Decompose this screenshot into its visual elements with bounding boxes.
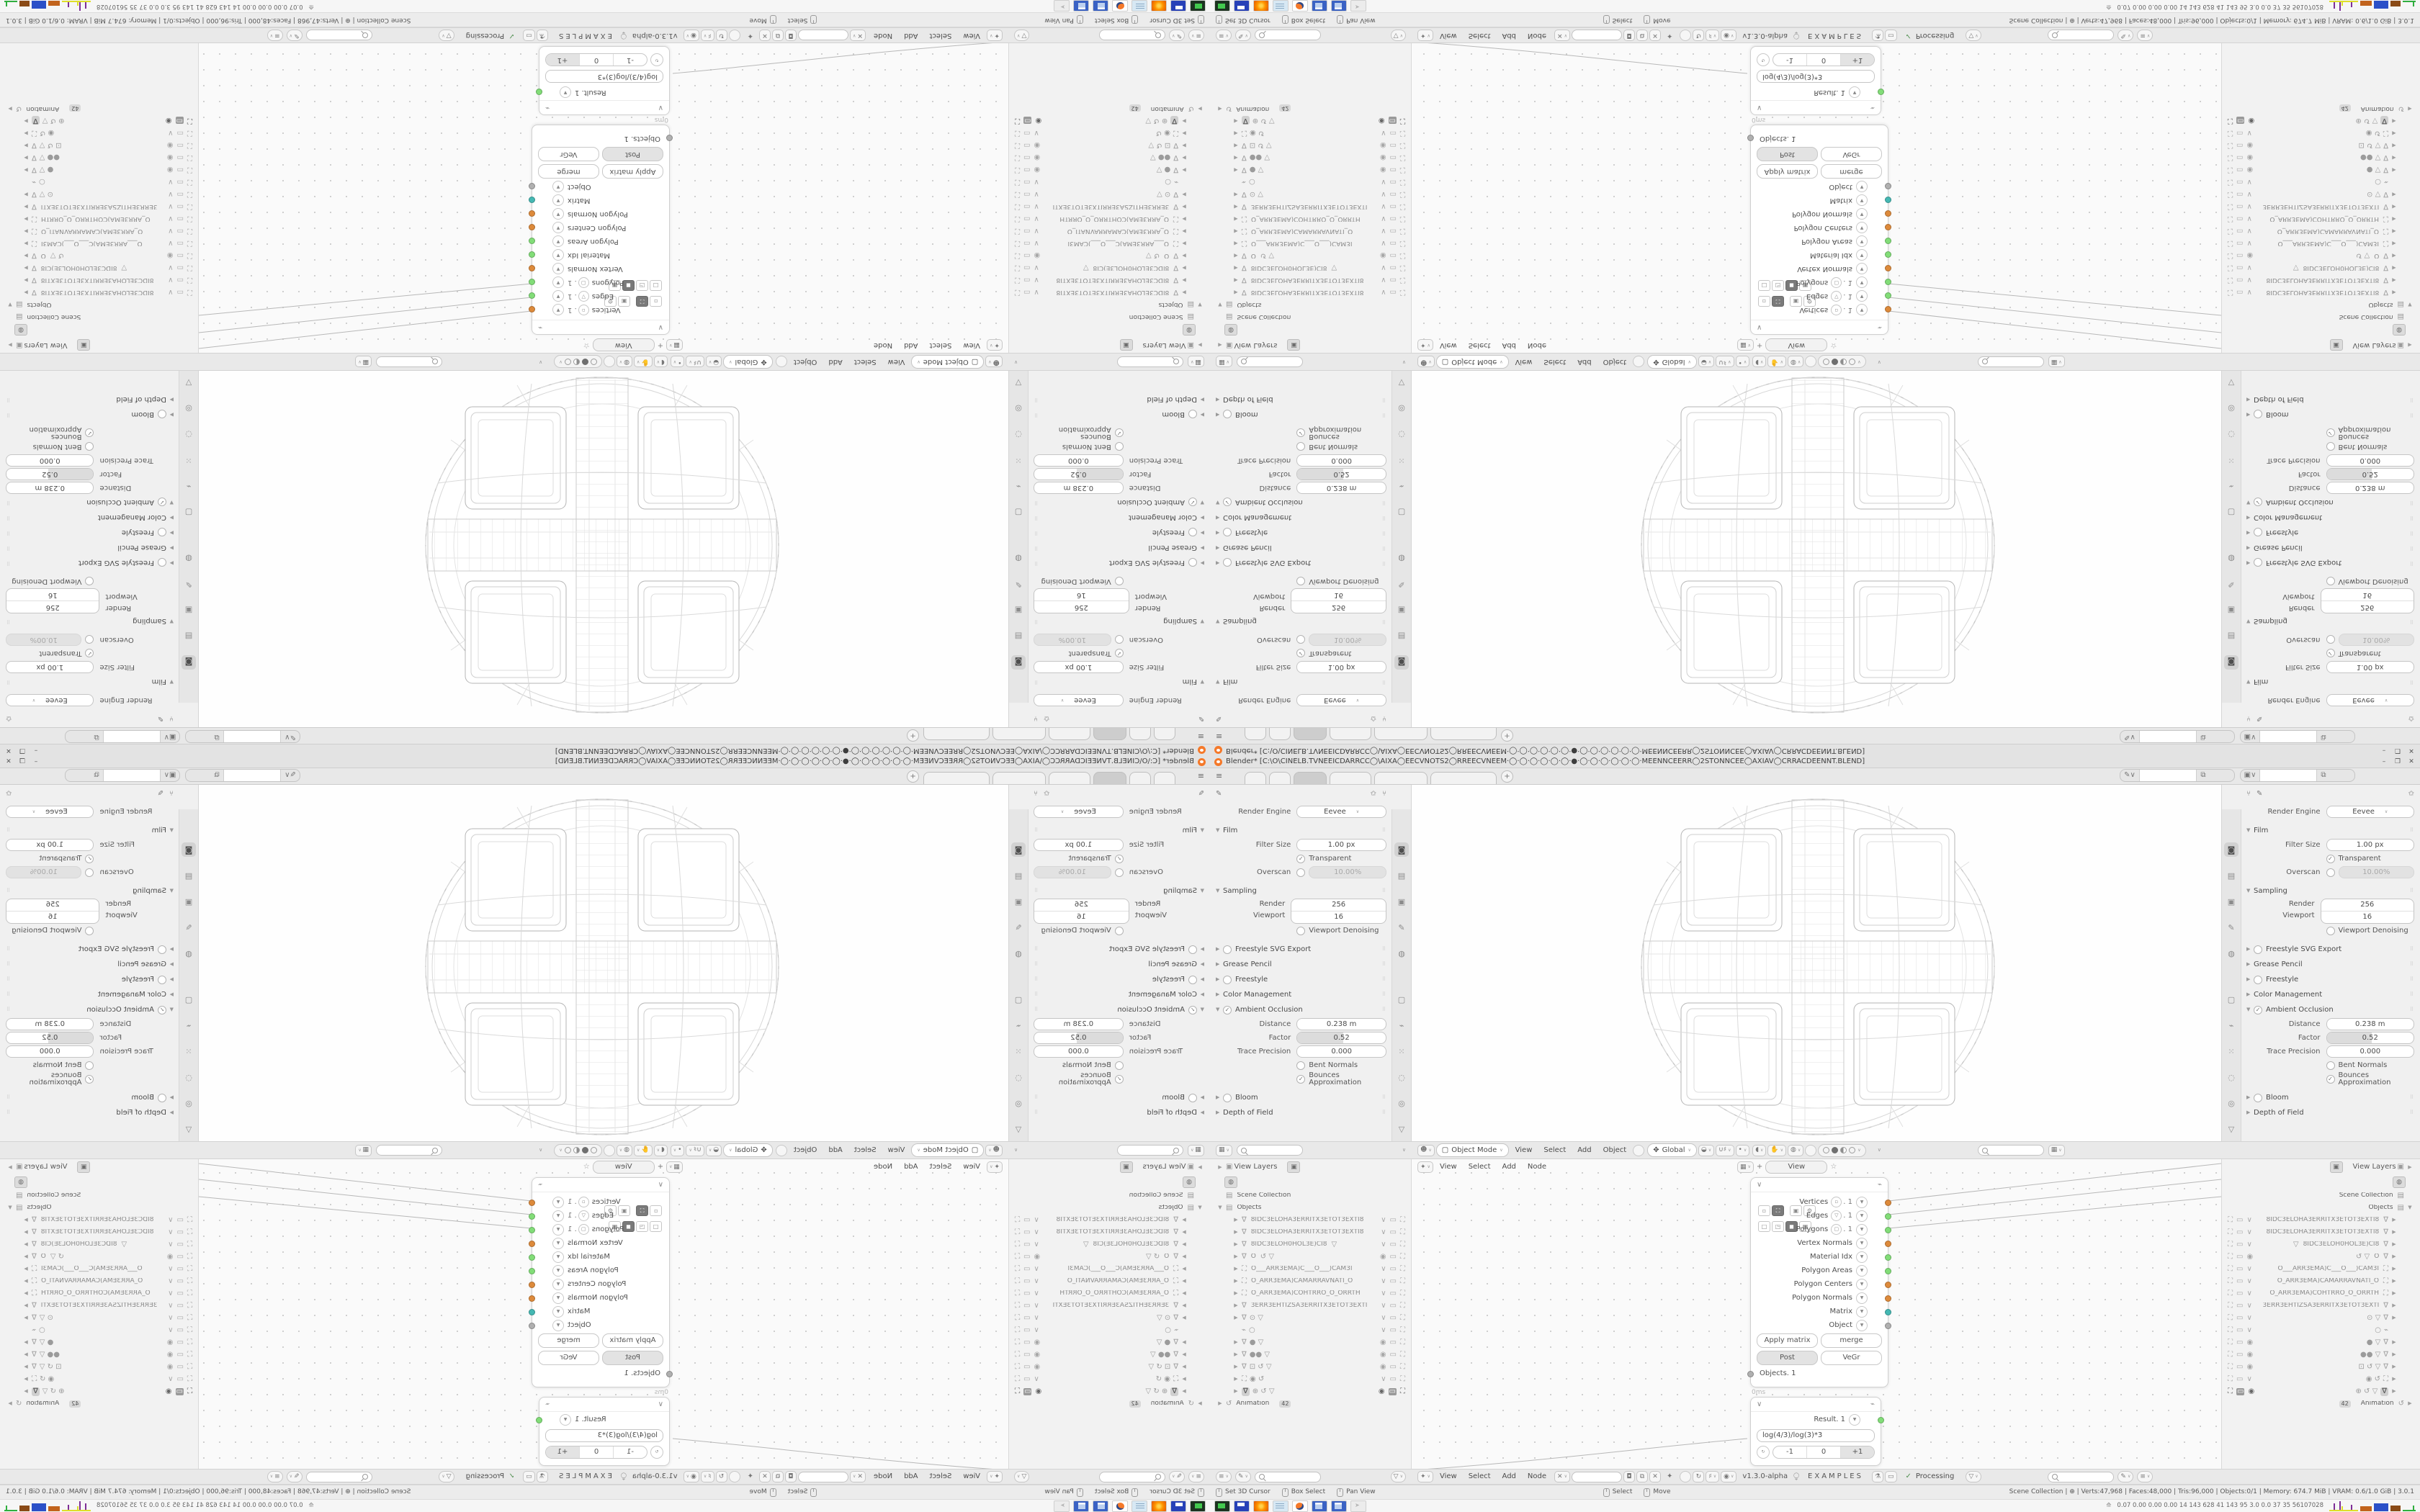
samples-render-input[interactable]: 256 <box>1034 899 1129 911</box>
node-output-polygon-areas[interactable]: Polygon Areas▼ <box>1751 1264 1888 1277</box>
node-result[interactable]: ∨⌁ Result. 1▼ log(4/3)/log(3)*3 ↻ -1 0 +… <box>1750 46 1881 115</box>
sphere-icon[interactable]: ◉∨ <box>684 30 699 41</box>
filter-size-input[interactable]: 1.00 px <box>1034 661 1124 673</box>
menu-select[interactable]: Select <box>1543 359 1566 366</box>
taskbar-blender-icon[interactable] <box>1292 1500 1308 1512</box>
workspace-tab[interactable] <box>1154 728 1175 740</box>
outliner-search-input[interactable] <box>306 30 372 41</box>
properties-search-input[interactable] <box>1237 356 1303 367</box>
section-depth-of-field[interactable]: ▶Depth of Field⠿ <box>1034 392 1204 407</box>
outliner-item[interactable]: ▶∇●● ▽◉▭⛶ <box>0 1349 198 1361</box>
workspace-tab[interactable] <box>1245 772 1266 784</box>
section-freestyle-svg[interactable]: ▶Freestyle SVG Export⠿ <box>1216 942 1386 957</box>
collapse-icon[interactable]: ▶ <box>2406 1165 2414 1170</box>
outliner-item[interactable]: ▶∇8IDC3ELOHA3ERRITX3ETOT3EXTI8∨▭⛶ <box>0 286 198 298</box>
id-selector-brush[interactable]: ✎∨ ⧉ <box>2120 769 2235 782</box>
add-workspace-button[interactable]: + <box>907 770 919 783</box>
transform-orientation-select[interactable]: ✥ Global∨ <box>1647 1143 1697 1157</box>
zero-button[interactable]: 0 <box>1806 54 1840 66</box>
menu-view[interactable]: View <box>888 1147 905 1154</box>
snap-grid-icon[interactable]: ♯∨ <box>1706 1471 1719 1482</box>
brush-icon[interactable]: ✎∨ <box>1235 30 1251 41</box>
outliner-item[interactable]: ▶∇⊡ ↺ ▽◉▭⛶ <box>1210 1361 1411 1373</box>
scene-collection-label[interactable]: Scene Collection <box>27 1192 81 1199</box>
bounces-checkbox[interactable]: ✓ <box>85 429 94 438</box>
section-film[interactable]: ▼Film⠿ <box>6 823 174 838</box>
copy-icon[interactable]: ⧉ <box>90 770 103 781</box>
socket-result[interactable] <box>536 1417 542 1423</box>
scene-collection-label[interactable]: Scene Collection <box>1129 1192 1183 1199</box>
properties-editor-icon[interactable]: ✎ <box>158 791 163 798</box>
menu-select[interactable]: Select <box>1469 1473 1491 1480</box>
minimize-button[interactable]: – <box>2380 759 2388 765</box>
section-freestyle-svg[interactable]: ▶Freestyle SVG Export⠿ <box>1034 555 1204 570</box>
menu-add[interactable]: Add <box>828 1147 842 1154</box>
scene-collection-label[interactable]: Scene Collection <box>2339 313 2393 320</box>
outliner-item[interactable]: ▶⛶◉ ↺∨▭⛶ <box>1009 127 1210 139</box>
denoise-checkbox[interactable] <box>2326 577 2335 586</box>
view-layer-button[interactable]: ▣ <box>2330 339 2343 351</box>
overscan-input[interactable]: 10.00% <box>2339 866 2414 878</box>
menu-object[interactable]: Object <box>794 1147 817 1154</box>
add-view-button[interactable]: + <box>1757 1164 1762 1171</box>
filter-icon[interactable]: ▽∨ <box>1391 30 1406 41</box>
pin-icon[interactable]: ✦ <box>1667 1473 1672 1480</box>
globe-icon[interactable]: ◍ <box>1183 324 1196 336</box>
outliner-animation-row[interactable]: ▶↺ Animation 42 <box>1210 1398 1411 1410</box>
expression-input[interactable]: log(4/3)/log(3)*3 <box>1757 1429 1875 1442</box>
node-editor-icon[interactable]: ✦∨ <box>987 30 1003 41</box>
overlays-icon[interactable]: ◍∨ <box>1788 1145 1803 1156</box>
bent-normals-checkbox[interactable] <box>2326 1061 2335 1070</box>
transform-orientation-select[interactable]: ✥ Global∨ <box>723 1143 773 1157</box>
filter-icon[interactable]: ▽∨ <box>1014 1471 1029 1482</box>
outliner-item[interactable]: ▶⛶O_ARR3EMA)COHTRRO_O_ORRTH∨▭⛶ <box>2222 1287 2420 1300</box>
section-color-management[interactable]: ▶Color Management⠿ <box>1216 510 1386 525</box>
menu-select[interactable]: Select <box>929 1164 951 1171</box>
shading-wireframe-icon[interactable] <box>591 359 597 365</box>
sphere-icon[interactable]: ◉∨ <box>1721 30 1736 41</box>
shield-icon[interactable]: ◘ <box>1623 30 1635 41</box>
menu-select[interactable]: Select <box>1543 1147 1566 1154</box>
taskbar-calculator-icon[interactable] <box>1312 1 1327 12</box>
view-layer-button[interactable]: ▣ <box>1120 1161 1133 1173</box>
workspace-tab[interactable] <box>1245 728 1266 740</box>
samples-viewport-input[interactable]: 16 <box>2321 589 2414 601</box>
bounces-checkbox[interactable]: ✓ <box>1115 1075 1124 1084</box>
tab-world[interactable]: ◍ <box>1394 946 1409 960</box>
snap-toggle-icon[interactable]: ◒∨ <box>1698 356 1714 368</box>
outliner-item[interactable]: ▶∇8IDC3ELOHA3ERRITX3ETOT3EXTI8∨▭⛶ <box>0 1226 198 1238</box>
socket-polygon-areas[interactable] <box>529 1268 535 1274</box>
globe-icon[interactable]: ◍ <box>2393 1176 2406 1188</box>
globe-icon[interactable]: ◍ <box>14 324 27 336</box>
tab-object[interactable]: ▢ <box>2224 505 2238 520</box>
node-mesh-data[interactable]: ∨⌁ ▫⛶ ▣⚙ □◳ ◼▦ Vertices▫. 1▼ Edges▽. 1▼ … <box>1750 125 1888 335</box>
node-output-edges[interactable]: Edges▽. 1▼ <box>532 1209 669 1223</box>
objects-collection-label[interactable]: Objects <box>2369 301 2393 307</box>
taskbar-terminal-icon[interactable] <box>1190 1500 1206 1512</box>
menu-object[interactable]: Object <box>1603 359 1627 366</box>
outliner-item[interactable]: ▶⛶◉ ↺∨▭⛶ <box>2222 127 2420 139</box>
socket-objects-input[interactable] <box>1747 1371 1754 1377</box>
properties-editor-icon[interactable]: ✎ <box>1198 791 1204 798</box>
freestyle-svg-checkbox[interactable] <box>1223 945 1232 954</box>
section-freestyle-svg[interactable]: ▶Freestyle SVG Export⠿ <box>6 942 174 957</box>
socket-polygon-centers[interactable] <box>529 1282 535 1288</box>
freestyle-checkbox[interactable] <box>1188 976 1197 984</box>
viewport-extra-button[interactable] <box>776 356 787 368</box>
apply-matrix-button[interactable]: Apply matrix <box>1757 1333 1818 1348</box>
tab-object[interactable]: ▢ <box>181 992 196 1007</box>
proportional-edit-icon[interactable]: •∨ <box>1736 1145 1750 1156</box>
viewport-extra-button[interactable] <box>776 1145 787 1156</box>
view-layer-button[interactable]: ▣ <box>77 1161 90 1173</box>
filter-size-input[interactable]: 1.00 px <box>1296 661 1386 673</box>
ao-distance-input[interactable]: 0.238 m <box>6 1018 94 1030</box>
bounces-checkbox[interactable]: ✓ <box>1296 1075 1305 1084</box>
samples-viewport-input[interactable]: 16 <box>1291 589 1386 601</box>
freestyle-svg-checkbox[interactable] <box>1188 945 1197 954</box>
overscan-input[interactable]: 10.00% <box>6 634 81 646</box>
dot-button[interactable] <box>1680 1471 1691 1482</box>
menu-node[interactable]: Node <box>1528 1164 1546 1171</box>
section-depth-of-field[interactable]: ▶Depth of Field⠿ <box>1034 1105 1204 1120</box>
outliner-item[interactable]: ⌁○∨▭⛶ <box>2222 1324 2420 1336</box>
outliner-search-input[interactable] <box>1255 1472 1321 1482</box>
outliner-item[interactable]: ⌁○∨▭⛶ <box>1009 1324 1210 1336</box>
minus-one-button[interactable]: -1 <box>614 54 647 66</box>
outliner-item[interactable]: ▶⛶O___ARR3EMA)C___O___)CAM3I∨▭⛶ <box>1210 237 1411 249</box>
copy-icon[interactable]: ⧉ <box>1636 1471 1648 1482</box>
bounces-checkbox[interactable]: ✓ <box>1296 429 1305 438</box>
tab-physics[interactable]: ◌ <box>181 1070 196 1084</box>
zero-button[interactable]: 0 <box>580 1446 614 1458</box>
dna-icon[interactable]: ✕∨ <box>1554 30 1570 41</box>
section-freestyle-svg[interactable]: ▶Freestyle SVG Export⠿ <box>6 555 174 570</box>
brush-icon[interactable]: ✎∨ <box>1169 1471 1185 1482</box>
tab-view-layer[interactable]: ▣ <box>181 894 196 909</box>
ao-trace-input[interactable]: 0.000 <box>2326 1045 2414 1058</box>
id-input[interactable] <box>103 731 161 742</box>
workspace-tab[interactable] <box>1330 728 1371 740</box>
outliner-item[interactable]: ▶⛶O_ARR3EMA)COHTRRO_O_ORRTH∨▭⛶ <box>1009 212 1210 225</box>
bloom-checkbox[interactable] <box>2254 410 2262 419</box>
tab-constraints[interactable]: ◎ <box>181 402 196 416</box>
menu-select[interactable]: Select <box>854 1147 877 1154</box>
objects-collection-label[interactable]: Objects <box>27 1205 51 1211</box>
node-output-vertex-normals[interactable]: Vertex Normals▼ <box>1751 262 1888 276</box>
workspace-tab[interactable] <box>1269 728 1291 740</box>
outliner-item[interactable]: ▶∇⊡ ↺ ▽◉▭⛶ <box>1009 1361 1210 1373</box>
snap-grid-icon[interactable]: ♯∨ <box>1706 30 1719 41</box>
taskbar-firefox-icon[interactable] <box>1151 1 1167 12</box>
shading-material-icon[interactable] <box>573 359 580 365</box>
outliner-item[interactable]: ▶∇O↺ ▽◉▭⛶ <box>0 249 198 261</box>
node-output-result[interactable]: Result. 1▼ <box>539 1412 669 1427</box>
outliner-item-selected[interactable]: ▶∇⊕ ↺ ▽◉▭⛶ <box>1009 1385 1210 1398</box>
brush-icon[interactable]: ✎∨ <box>287 1471 302 1482</box>
outliner-item[interactable]: ▶∇⊙ ▽∨▭⛶ <box>2222 188 2420 200</box>
render-engine-select[interactable]: Eevee∨ <box>2326 806 2414 818</box>
objects-collection-label[interactable]: Objects <box>1159 301 1183 307</box>
bloom-checkbox[interactable] <box>1223 410 1232 419</box>
tab-modifiers[interactable]: ⌁ <box>181 1018 196 1032</box>
add-view-button[interactable]: + <box>658 341 663 348</box>
outliner-item[interactable]: ▶⛶◉ ↺∨▭⛶ <box>0 127 198 139</box>
outliner-search-input[interactable] <box>2048 1472 2114 1482</box>
tab-render[interactable]: ◙ <box>181 842 196 857</box>
outliner-item[interactable]: ▶⛶O_ARR3EMA)COHTRRO_O_ORRTH∨▭⛶ <box>0 1287 198 1300</box>
workspace-tab[interactable] <box>923 772 990 784</box>
render-engine-select[interactable]: Eevee∨ <box>1034 694 1124 706</box>
render-engine-select[interactable]: Eevee∨ <box>2326 694 2414 706</box>
shading-material-icon[interactable] <box>1840 1147 1847 1153</box>
monitor-icon[interactable]: ▭ <box>1885 1471 1897 1482</box>
section-color-management[interactable]: ▶Color Management⠿ <box>6 987 174 1002</box>
overscan-input[interactable]: 10.00% <box>1034 866 1111 878</box>
menu-node[interactable]: Node <box>874 1164 892 1171</box>
editor-type-button[interactable]: ▦∨ <box>1188 356 1204 368</box>
window-titlebar[interactable]: Blender* [C:\O\CINELB.TVNEEICDARRCC◯\AIX… <box>0 744 1210 756</box>
shading-rendered-icon[interactable] <box>1849 1147 1855 1153</box>
shield-icon[interactable]: ◘ <box>1623 1471 1635 1482</box>
outliner-item[interactable]: ▶∇⊡ ↺ ▽◉▭⛶ <box>1009 139 1210 151</box>
tab-render[interactable]: ◙ <box>2224 655 2238 670</box>
menu-select[interactable]: Select <box>929 341 951 348</box>
node-output-vertices[interactable]: Vertices▫. 1▼ <box>1751 303 1888 317</box>
outliner-item[interactable]: ▶∇●● ▽◉▭⛶ <box>2222 1349 2420 1361</box>
collapse-icon[interactable]: ▶ <box>1216 343 1224 348</box>
socket-objects-input[interactable] <box>1747 135 1754 141</box>
samples-viewport-input[interactable]: 16 <box>1034 911 1129 923</box>
ao-factor-slider[interactable]: 0.52 <box>1296 1032 1386 1044</box>
menu-add[interactable]: Add <box>1502 32 1516 39</box>
node-output-polygon-centers[interactable]: Polygon Centers▼ <box>1751 221 1888 235</box>
workspace-tab[interactable] <box>1374 728 1428 740</box>
samples-render-input[interactable]: 256 <box>1034 601 1129 613</box>
node-result[interactable]: ∨⌁ Result. 1▼ log(4/3)/log(3)*3 ↻ -1 0 +… <box>1750 1397 1881 1466</box>
tab-view-layer[interactable]: ▣ <box>1011 894 1026 909</box>
vegr-button[interactable]: VeGr <box>538 147 599 161</box>
editor-type-button[interactable]: ▦∨ <box>2048 1145 2065 1156</box>
globe-icon[interactable]: ◍ <box>1224 1176 1237 1188</box>
tab-output[interactable]: ▤ <box>1011 868 1026 883</box>
outliner-item[interactable]: ⌁○∨▭⛶ <box>2222 176 2420 188</box>
add-view-button[interactable]: + <box>1757 341 1762 348</box>
menu-add[interactable]: Add <box>904 341 918 348</box>
outliner-item[interactable]: ▶∇3ERR3EHTIZSA3ERRITX3ETOT3EXTI∨▭⛶ <box>1210 1300 1411 1312</box>
shading-rendered-icon[interactable] <box>565 359 571 365</box>
section-grease-pencil[interactable]: ▶Grease Pencil⠿ <box>1034 540 1204 555</box>
tab-particles[interactable]: ⁙ <box>2224 454 2238 468</box>
magnet-icon[interactable]: ∪♯∨ <box>686 356 704 368</box>
maximize-button[interactable]: ❐ <box>18 747 27 754</box>
snap-grid-icon[interactable]: ♯∨ <box>701 1471 714 1482</box>
menu-add[interactable]: Add <box>904 32 918 39</box>
section-film[interactable]: ▼Film⠿ <box>1216 674 1386 689</box>
properties-search-input[interactable] <box>1978 356 2044 367</box>
tab-scene[interactable]: ✎ <box>1011 577 1026 592</box>
outliner-search-input[interactable] <box>1099 30 1165 41</box>
node-mesh-data[interactable]: ∨⌁ ▫⛶ ▣⚙ □◳ ◼▦ Vertices▫. 1▼ Edges▽. 1▼ … <box>1750 1177 1888 1387</box>
menu-view[interactable]: View <box>1515 1147 1533 1154</box>
overscan-input[interactable]: 10.00% <box>1034 634 1111 646</box>
tab-world[interactable]: ◍ <box>181 552 196 566</box>
scene-collection-label[interactable]: Scene Collection <box>1237 313 1291 320</box>
tab-scene[interactable]: ✎ <box>1394 920 1409 935</box>
shading-solid-icon[interactable] <box>582 1147 588 1153</box>
minimize-button[interactable]: – <box>32 747 40 754</box>
node-output-vertices[interactable]: Vertices▫. 1▼ <box>1751 1195 1888 1209</box>
refresh-icon[interactable]: ↻ <box>1757 53 1770 66</box>
socket-vertex-normals[interactable] <box>529 266 535 272</box>
object-mode-select[interactable]: ▢ Object Mode∨ <box>1436 355 1509 369</box>
section-ambient-occlusion[interactable]: ▼✓Ambient Occlusion⠿ <box>1216 1002 1386 1017</box>
viewport-3d[interactable] <box>1412 785 2221 1141</box>
outliner-item[interactable]: ▶∇8IDC3ELOHA3ERRITX3ETOT3EXTI8∨▭⛶ <box>2222 1226 2420 1238</box>
dna-icon[interactable]: ✕∨ <box>850 1471 866 1482</box>
properties-search-input[interactable] <box>1237 1145 1303 1156</box>
section-ambient-occlusion[interactable]: ▼✓Ambient Occlusion⠿ <box>6 495 174 510</box>
ao-distance-input[interactable]: 0.238 m <box>6 482 94 494</box>
outliner-item[interactable]: ▶∇8IDC3ELOHA3ERRITX3ETOT3EXTI8∨▭⛶ <box>1210 274 1411 286</box>
section-ambient-occlusion[interactable]: ▼✓Ambient Occlusion⠿ <box>1216 495 1386 510</box>
ao-distance-input[interactable]: 0.238 m <box>2326 1018 2414 1030</box>
ao-factor-slider[interactable]: 0.52 <box>2326 468 2414 480</box>
id-selector-image[interactable]: ▣∨ ⧉ <box>2240 730 2355 743</box>
section-color-management[interactable]: ▶Color Management⠿ <box>1216 987 1386 1002</box>
menu-view[interactable]: View <box>1440 1473 1457 1480</box>
taskbar-notes-icon[interactable] <box>1131 1500 1147 1512</box>
menu-add[interactable]: Add <box>904 1473 918 1480</box>
socket-material-idx[interactable] <box>1885 1254 1891 1261</box>
outliner-search-input[interactable] <box>2048 30 2114 41</box>
close-button[interactable]: ✕ <box>4 759 13 765</box>
proportional-edit-icon[interactable]: •∨ <box>671 1145 685 1156</box>
expression-input[interactable]: log(4/3)/log(3)*3 <box>545 1429 663 1442</box>
node-editor-icon[interactable]: ✦∨ <box>987 1471 1003 1482</box>
tab-output[interactable]: ▤ <box>2224 868 2238 883</box>
tab-object[interactable]: ▢ <box>1011 505 1026 520</box>
brush-icon[interactable]: ✎∨ <box>287 30 302 41</box>
outliner-item[interactable]: ⌁○∨▭⛶ <box>1210 1324 1411 1336</box>
samples-render-input[interactable]: 256 <box>2321 899 2414 911</box>
ao-checkbox[interactable]: ✓ <box>2254 1006 2262 1014</box>
collapse-icon[interactable]: ▶ <box>1196 1165 1204 1170</box>
section-ambient-occlusion[interactable]: ▼✓Ambient Occlusion⠿ <box>2246 495 2414 510</box>
outliner-item[interactable]: ▶∇8IDC3ELOH0HOL3E)CI8▽∨▭⛶ <box>2222 261 2420 274</box>
node-search-input[interactable] <box>1572 1472 1622 1482</box>
taskbar-calculator-icon[interactable] <box>1093 1 1108 12</box>
outliner-item[interactable]: ▶∇8IDC3ELOH0HOL3E)CI8▽∨▭⛶ <box>0 261 198 274</box>
tab-output[interactable]: ▤ <box>181 868 196 883</box>
tab-output[interactable]: ▤ <box>181 629 196 644</box>
star-icon[interactable]: ☆ <box>1830 1164 1837 1171</box>
tab-modifiers[interactable]: ⌁ <box>1394 1018 1409 1032</box>
tab-view-layer[interactable]: ▣ <box>181 603 196 618</box>
outliner-item[interactable]: ▶∇8IDC3ELOH0HOL3E)CI8▽∨▭⛶ <box>1009 261 1210 274</box>
outliner-item[interactable]: ▶∇⊡ ↺ ▽◉▭⛶ <box>2222 139 2420 151</box>
section-depth-of-field[interactable]: ▶Depth of Field⠿ <box>6 1105 174 1120</box>
snap-toggle-icon[interactable]: ◒∨ <box>706 356 722 368</box>
tab-physics[interactable]: ◌ <box>2224 428 2238 442</box>
outliner-item-selected[interactable]: ▶∇⊕ ↺ ▽◉▭⛶ <box>2222 114 2420 127</box>
tab-data[interactable]: ▽ <box>2224 376 2238 390</box>
filter-size-input[interactable]: 1.00 px <box>6 661 94 673</box>
globe-icon[interactable]: ◍ <box>1224 324 1237 336</box>
editor-type-button[interactable]: ▦∨ <box>2048 356 2065 368</box>
socket-polygon-normals[interactable] <box>1885 1295 1891 1302</box>
outliner-animation-row[interactable]: ▶↺ Animation 42 <box>0 1398 198 1410</box>
tab-scene[interactable]: ✎ <box>1011 920 1026 935</box>
grid-icon[interactable]: ▦∨ <box>1737 339 1754 351</box>
node-output-vertices[interactable]: Vertices▫. 1▼ <box>532 1195 669 1209</box>
section-grease-pencil[interactable]: ▶Grease Pencil⠿ <box>2246 957 2414 972</box>
workspace-tab[interactable] <box>1330 772 1371 784</box>
node-editor[interactable]: ✦∨ View Select Add Node ▦∨ + View ☆ ∨⌁ ▫… <box>1412 43 2221 353</box>
outliner-item-selected[interactable]: ▶∇⊕ ↺ ▽◉▭⛶ <box>1210 114 1411 127</box>
socket-vertex-normals[interactable] <box>1885 1241 1891 1247</box>
socket-matrix[interactable] <box>529 1309 535 1315</box>
tab-world[interactable]: ◍ <box>1394 552 1409 566</box>
section-freestyle-svg[interactable]: ▶Freestyle SVG Export⠿ <box>2246 555 2414 570</box>
menu-object[interactable]: Object <box>1603 1147 1627 1154</box>
pin-icon[interactable]: ✦ <box>748 32 753 39</box>
globe-icon[interactable]: ◍ <box>2393 324 2406 336</box>
refresh-icon[interactable]: ↻ <box>1757 1446 1770 1459</box>
outliner-search-input[interactable] <box>1099 1472 1165 1482</box>
outliner-search-input[interactable] <box>1255 30 1321 41</box>
freestyle-svg-checkbox[interactable] <box>2254 945 2262 954</box>
id-selector-image[interactable]: ▣∨ ⧉ <box>65 769 180 782</box>
taskbar-blender-icon[interactable] <box>1292 1 1308 12</box>
maximize-button[interactable]: ❐ <box>18 759 27 765</box>
section-depth-of-field[interactable]: ▶Depth of Field⠿ <box>1216 1105 1386 1120</box>
workspace-tab[interactable] <box>923 728 990 740</box>
outliner-item[interactable]: ▶∇⊙ ▽∨▭⛶ <box>1210 1312 1411 1324</box>
filter-icon[interactable]: ▽∨ <box>439 1471 454 1482</box>
node-output-polygons[interactable]: Polygons▢. 1▼ <box>532 276 669 289</box>
properties-editor-icon[interactable]: ✎ <box>1216 714 1222 721</box>
outliner-item[interactable]: ▶⛶O___ARR3EMA)C___O___)CAM3I∨▭⛶ <box>1009 237 1210 249</box>
mode-icon-button[interactable]: ☻∨ <box>1417 1145 1435 1156</box>
ao-trace-input[interactable]: 0.000 <box>1296 454 1386 467</box>
outliner-item[interactable]: ▶∇● ▽◉▭⛶ <box>0 1336 198 1349</box>
ao-checkbox[interactable]: ✓ <box>1223 1006 1232 1014</box>
apply-matrix-button[interactable]: Apply matrix <box>1757 164 1818 179</box>
xray-button[interactable] <box>1805 356 1816 368</box>
add-workspace-button[interactable]: + <box>1501 770 1513 783</box>
tool-icon[interactable]: ⑂ <box>1034 714 1038 721</box>
maximize-button[interactable]: ❐ <box>2393 759 2402 765</box>
orbit-icon[interactable]: ↻ <box>1693 1471 1704 1482</box>
section-sampling[interactable]: ▼Sampling⠿ <box>6 883 174 899</box>
tab-constraints[interactable]: ◎ <box>1394 402 1409 416</box>
samples-render-input[interactable]: 256 <box>2321 601 2414 613</box>
monitor-icon[interactable]: ▭ <box>523 30 535 41</box>
taskbar-terminal-icon[interactable] <box>1190 1 1206 12</box>
overscan-checkbox[interactable] <box>2326 636 2335 644</box>
tab-render[interactable]: ◙ <box>1394 655 1409 670</box>
node-output-matrix[interactable]: Matrix▼ <box>1751 194 1888 207</box>
taskbar-calculator2-icon[interactable] <box>1331 1 1347 12</box>
ao-trace-input[interactable]: 0.000 <box>6 454 94 467</box>
denoise-checkbox[interactable] <box>85 577 94 586</box>
tab-physics[interactable]: ◌ <box>1394 428 1409 442</box>
outliner-animation-row[interactable]: ▶↺ Animation 42 <box>0 102 198 114</box>
close-x-icon[interactable]: ✕ <box>1649 1471 1661 1482</box>
